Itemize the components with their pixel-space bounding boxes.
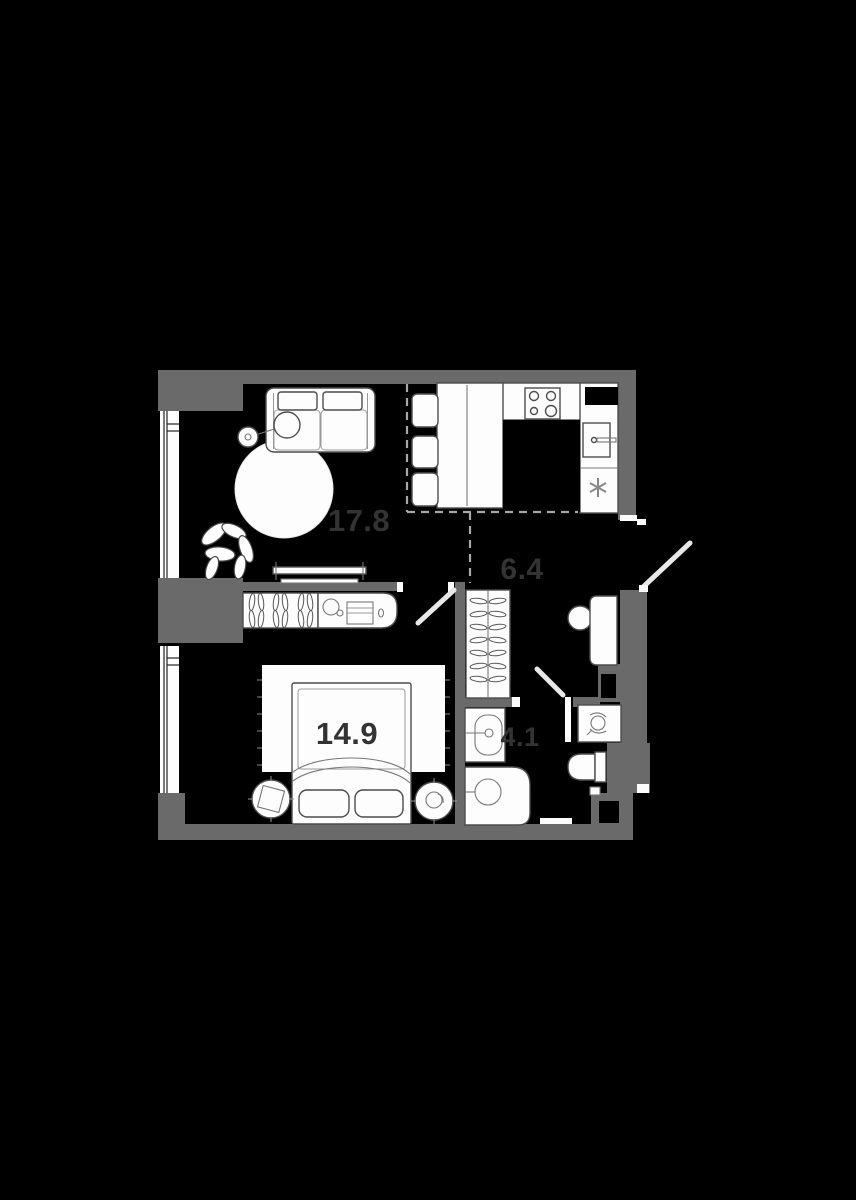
floor-plan-svg: 17.8 6.4 14.9 4.1	[0, 0, 856, 1200]
chair-icon	[412, 473, 438, 506]
bathroom-sink-icon	[465, 708, 505, 762]
door-jamb	[565, 697, 571, 742]
door-jamb	[512, 697, 520, 707]
tv	[273, 567, 366, 574]
threshold	[540, 818, 572, 824]
double-bed-icon	[292, 683, 411, 824]
round-rug-icon	[235, 440, 333, 538]
window-bedroom	[160, 646, 179, 793]
vent-shaft-icon	[585, 387, 618, 405]
wall-segment	[243, 370, 618, 384]
bedroom-wardrobe	[243, 593, 318, 628]
door-jamb	[637, 519, 646, 525]
desk-chair-icon	[568, 606, 592, 630]
desk-icon	[590, 596, 617, 665]
dining-table-icon	[437, 383, 503, 508]
door-hinge	[639, 585, 648, 592]
back-pillow	[278, 392, 317, 410]
area-label-living-room: 17.8	[328, 503, 390, 538]
shower-icon	[578, 705, 621, 742]
pillow-icon	[355, 790, 403, 817]
chair-icon	[412, 436, 438, 468]
wall-segment	[158, 793, 185, 840]
wall-segment	[185, 824, 591, 840]
wall-niche	[599, 801, 619, 823]
window-living	[160, 411, 179, 578]
wall-notch	[637, 784, 649, 793]
area-label-bathroom: 4.1	[500, 722, 539, 752]
flush-button	[590, 787, 600, 795]
door-jamb	[397, 582, 403, 592]
tank	[595, 752, 606, 782]
console-shelf	[281, 579, 358, 583]
door-jamb	[620, 515, 637, 521]
bowl	[568, 754, 595, 780]
wall-segment	[158, 578, 243, 643]
hall-wardrobe-icon	[466, 590, 510, 698]
floor-plan-page: 17.8 6.4 14.9 4.1	[0, 0, 856, 1200]
pillow-icon	[299, 790, 349, 817]
chair-icon	[412, 394, 438, 427]
area-label-hallway: 6.4	[500, 553, 543, 586]
washing-machine-icon	[465, 767, 530, 825]
wall-segment	[618, 370, 636, 520]
back-pillow	[323, 392, 362, 410]
vanity-icon	[318, 593, 397, 628]
wall-niche	[601, 674, 616, 698]
wall-segment	[620, 590, 647, 747]
kitchen-floor	[503, 420, 580, 512]
wall-segment	[158, 370, 243, 411]
background	[0, 0, 856, 1200]
area-label-bedroom: 14.9	[316, 716, 378, 751]
